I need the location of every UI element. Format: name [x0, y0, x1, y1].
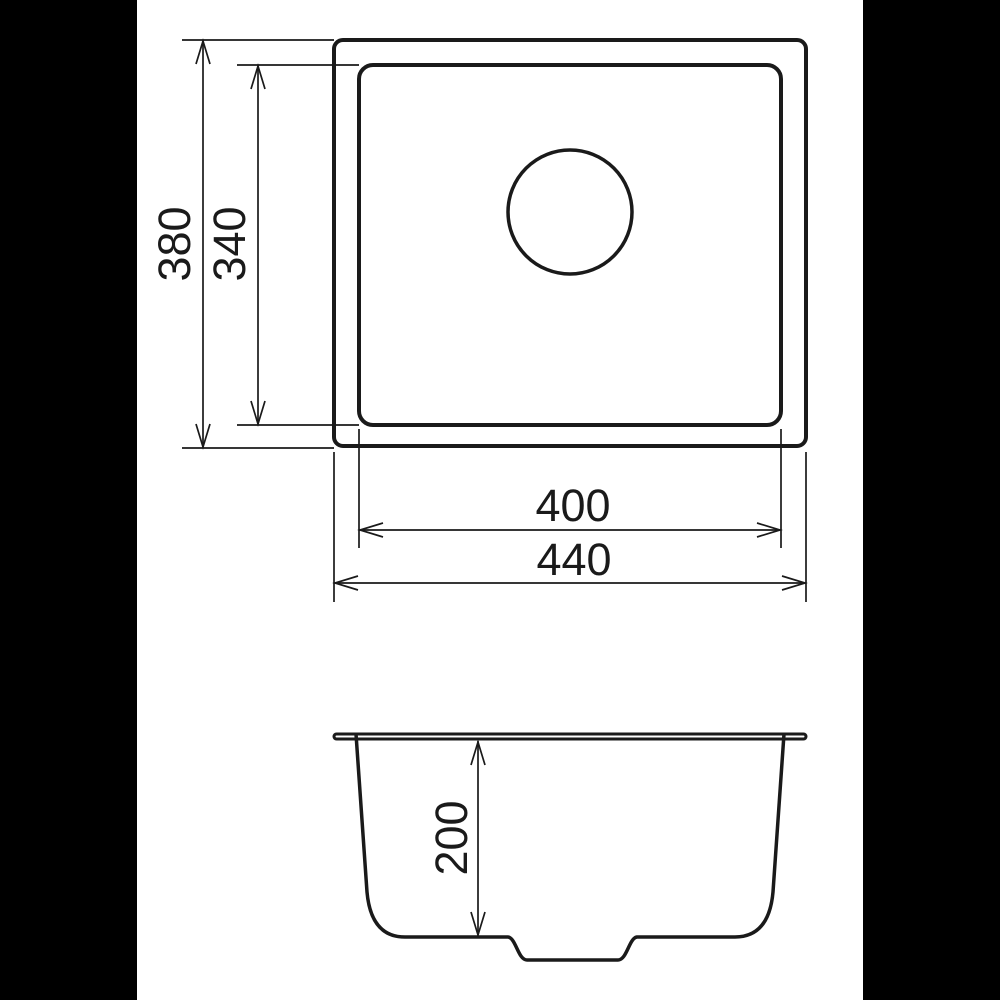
sink-outer-rim	[334, 40, 806, 446]
pillarbox-left	[0, 0, 137, 1000]
top-view	[334, 40, 806, 446]
dim-outer-height-label: 380	[149, 206, 200, 281]
side-view	[334, 734, 806, 960]
sink-bowl-profile	[356, 734, 784, 960]
pillarbox-right	[863, 0, 1000, 1000]
sink-technical-drawing: 380 340 400 440	[0, 0, 1000, 1000]
dim-depth: 200	[426, 741, 485, 936]
dim-depth-label: 200	[426, 800, 477, 875]
dim-outer-width-label: 440	[536, 534, 611, 585]
dim-inner-width-label: 400	[535, 480, 610, 531]
dim-inner-height-label: 340	[204, 206, 255, 281]
sink-rim-flange	[334, 734, 806, 739]
drawing-canvas: 380 340 400 440	[0, 0, 1000, 1000]
